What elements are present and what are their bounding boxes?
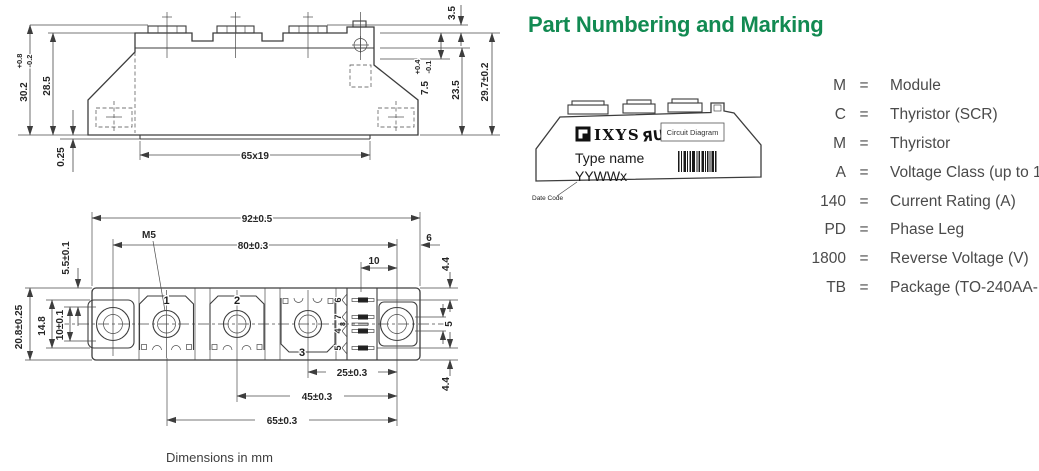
legend-value: Thyristor (SCR) <box>882 106 1034 124</box>
dim-65x19: 65x19 <box>241 151 269 162</box>
circuit-diagram-label: Circuit Diagram <box>667 128 719 137</box>
terminal-3: 3 <box>281 290 335 359</box>
equals-sign: = <box>846 106 882 124</box>
dim-23-5: 23.5 <box>451 80 462 100</box>
pin-4-label: 4 <box>333 328 343 333</box>
dim-92: 92±0.5 <box>242 214 273 225</box>
dim-4-4-bottom: 4.4 <box>441 377 452 391</box>
legend-value: Phase Leg <box>882 221 1034 239</box>
pin-7-label: 7 <box>333 314 343 319</box>
equals-sign: = <box>846 135 882 153</box>
legend-row: PD = Phase Leg <box>772 216 1034 245</box>
pin-6-label: 6 <box>333 297 343 302</box>
side-view-drawing: 30.2 +0.8 -0.2 28.5 0.25 65x19 3.5 7.5 +… <box>0 0 520 200</box>
dim-6: 6 <box>426 233 432 244</box>
date-code-value: YYWWx <box>575 168 627 184</box>
pin-5-label: 5 <box>333 345 343 350</box>
thread-callout-m5: M5 <box>142 230 156 241</box>
mounting-pad-left <box>88 239 134 356</box>
m5-leader-line <box>153 241 165 311</box>
dim-3-5: 3.5 <box>447 6 458 20</box>
dim-30-2-tol-minus: -0.2 <box>25 55 34 68</box>
dim-7-5-tol-plus: +0.4 <box>413 59 422 75</box>
terminal-3-label: 3 <box>299 347 305 359</box>
legend-key: M <box>772 135 846 153</box>
legend-value: Voltage Class (up to 1800 V) <box>882 164 1039 182</box>
dim-7-5-tol-minus: -0.1 <box>424 61 433 74</box>
ixys-logo-icon <box>577 128 589 140</box>
legend-key: PD <box>772 221 846 239</box>
equals-sign: = <box>846 221 882 239</box>
legend-row: A = Voltage Class (up to 1800 V) <box>772 158 1034 187</box>
type-name-text: Type name <box>575 150 644 166</box>
dim-10-01: 10±0.1 <box>55 309 66 340</box>
dim-65: 65±0.3 <box>267 416 298 427</box>
pin-8-label: 8 <box>340 322 347 326</box>
legend-key: TB <box>772 279 846 297</box>
legend-key: 140 <box>772 193 846 211</box>
top-view-drawing: 1 2 3 <box>0 200 520 471</box>
dim-28-5: 28.5 <box>42 76 53 96</box>
legend-key: 1800 <box>772 250 846 268</box>
dimensions-caption: Dimensions in mm <box>166 450 273 465</box>
terminal-2-label: 2 <box>234 295 240 307</box>
module-top-terminals <box>568 99 702 114</box>
dim-29-7: 29.7±0.2 <box>480 62 491 101</box>
legend-key: M <box>772 77 846 95</box>
dim-0-25: 0.25 <box>56 147 67 167</box>
dim-7-5: 7.5 <box>420 81 431 95</box>
module-marking-illustration: IXYS ЯU Circuit Diagram Type name YYWWx … <box>528 97 764 209</box>
date-code-label: Date Code <box>532 195 563 202</box>
legend-row: TB = Package (TO-240AA-1B) <box>772 274 1034 303</box>
mounting-pad-right <box>379 239 417 426</box>
mounting-hole-right-hidden <box>378 101 414 133</box>
date-code-leader-line <box>557 182 577 196</box>
legend-key: C <box>772 106 846 124</box>
dim-25: 25±0.3 <box>337 368 368 379</box>
equals-sign: = <box>846 279 882 297</box>
part-number-legend: M = Module C = Thyristor (SCR) M = Thyri… <box>772 72 1034 302</box>
dim-30-2-tol-plus: +0.8 <box>15 54 24 69</box>
dim-4-4-top: 4.4 <box>441 257 452 271</box>
dim-20-8: 20.8±0.25 <box>14 304 25 349</box>
legend-value: Thyristor <box>882 135 1034 153</box>
legend-row: 140 = Current Rating (A) <box>772 187 1034 216</box>
dim-10: 10 <box>368 256 380 267</box>
section-title: Part Numbering and Marking <box>528 12 824 38</box>
dim-5-5: 5.5±0.1 <box>61 241 72 275</box>
legend-value: Reverse Voltage (V) <box>882 250 1034 268</box>
module-body-outline <box>88 27 418 135</box>
legend-row: C = Thyristor (SCR) <box>772 101 1034 130</box>
equals-sign: = <box>846 164 882 182</box>
legend-value: Package (TO-240AA-1B) <box>882 279 1039 297</box>
dim-30-2: 30.2 <box>19 82 30 102</box>
equals-sign: = <box>846 77 882 95</box>
datasheet-page: 30.2 +0.8 -0.2 28.5 0.25 65x19 3.5 7.5 +… <box>0 0 1039 471</box>
mounting-hole-left-hidden <box>96 101 132 133</box>
legend-row: M = Thyristor <box>772 130 1034 159</box>
legend-key: A <box>772 164 846 182</box>
equals-sign: = <box>846 193 882 211</box>
legend-value: Current Rating (A) <box>882 193 1034 211</box>
legend-row: M = Module <box>772 72 1034 101</box>
dim-14-8: 14.8 <box>37 316 48 336</box>
dim-80: 80±0.3 <box>238 241 269 252</box>
legend-value: Module <box>882 77 1034 95</box>
brand-wordmark: IXYS <box>594 126 640 144</box>
legend-row: 1800 = Reverse Voltage (V) <box>772 245 1034 274</box>
dim-5: 5 <box>444 321 455 327</box>
tab-notch <box>714 105 721 111</box>
equals-sign: = <box>846 250 882 268</box>
dim-45: 45±0.3 <box>302 392 333 403</box>
barcode <box>678 151 717 172</box>
